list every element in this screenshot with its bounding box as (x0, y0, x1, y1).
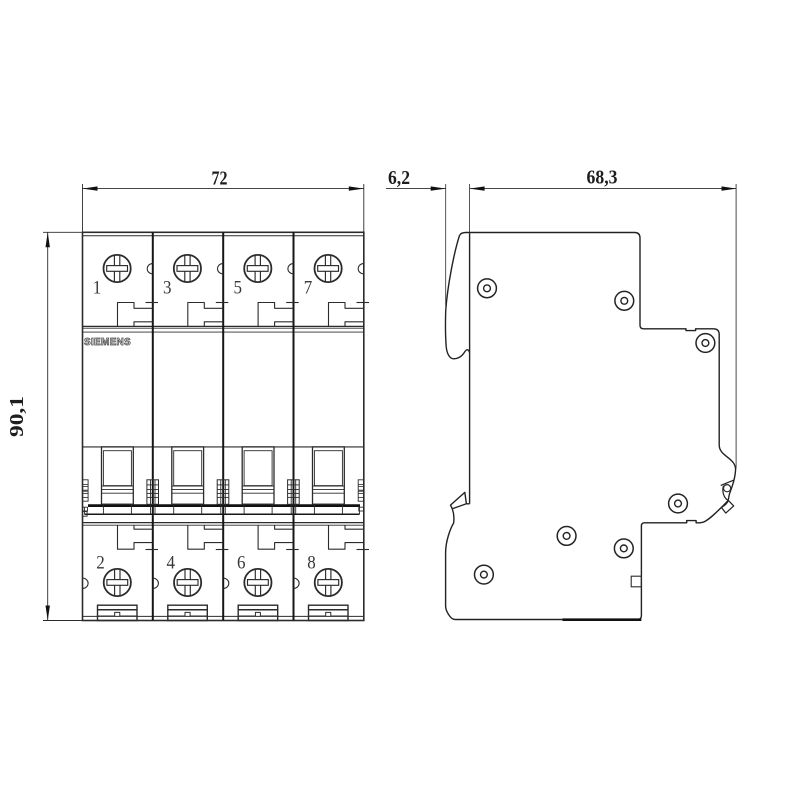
svg-text:3: 3 (163, 278, 172, 299)
svg-text:6,2: 6,2 (388, 167, 410, 189)
svg-text:7: 7 (304, 278, 313, 299)
svg-text:72: 72 (212, 168, 228, 190)
svg-text:90,1: 90,1 (6, 396, 28, 437)
svg-text:4: 4 (167, 553, 176, 574)
svg-text:8: 8 (307, 553, 316, 574)
svg-text:68,3: 68,3 (587, 167, 618, 189)
svg-text:SIEMENS: SIEMENS (84, 337, 131, 348)
svg-text:1: 1 (93, 278, 102, 299)
svg-text:2: 2 (96, 553, 105, 574)
svg-text:6: 6 (237, 553, 246, 574)
svg-text:5: 5 (233, 278, 242, 299)
